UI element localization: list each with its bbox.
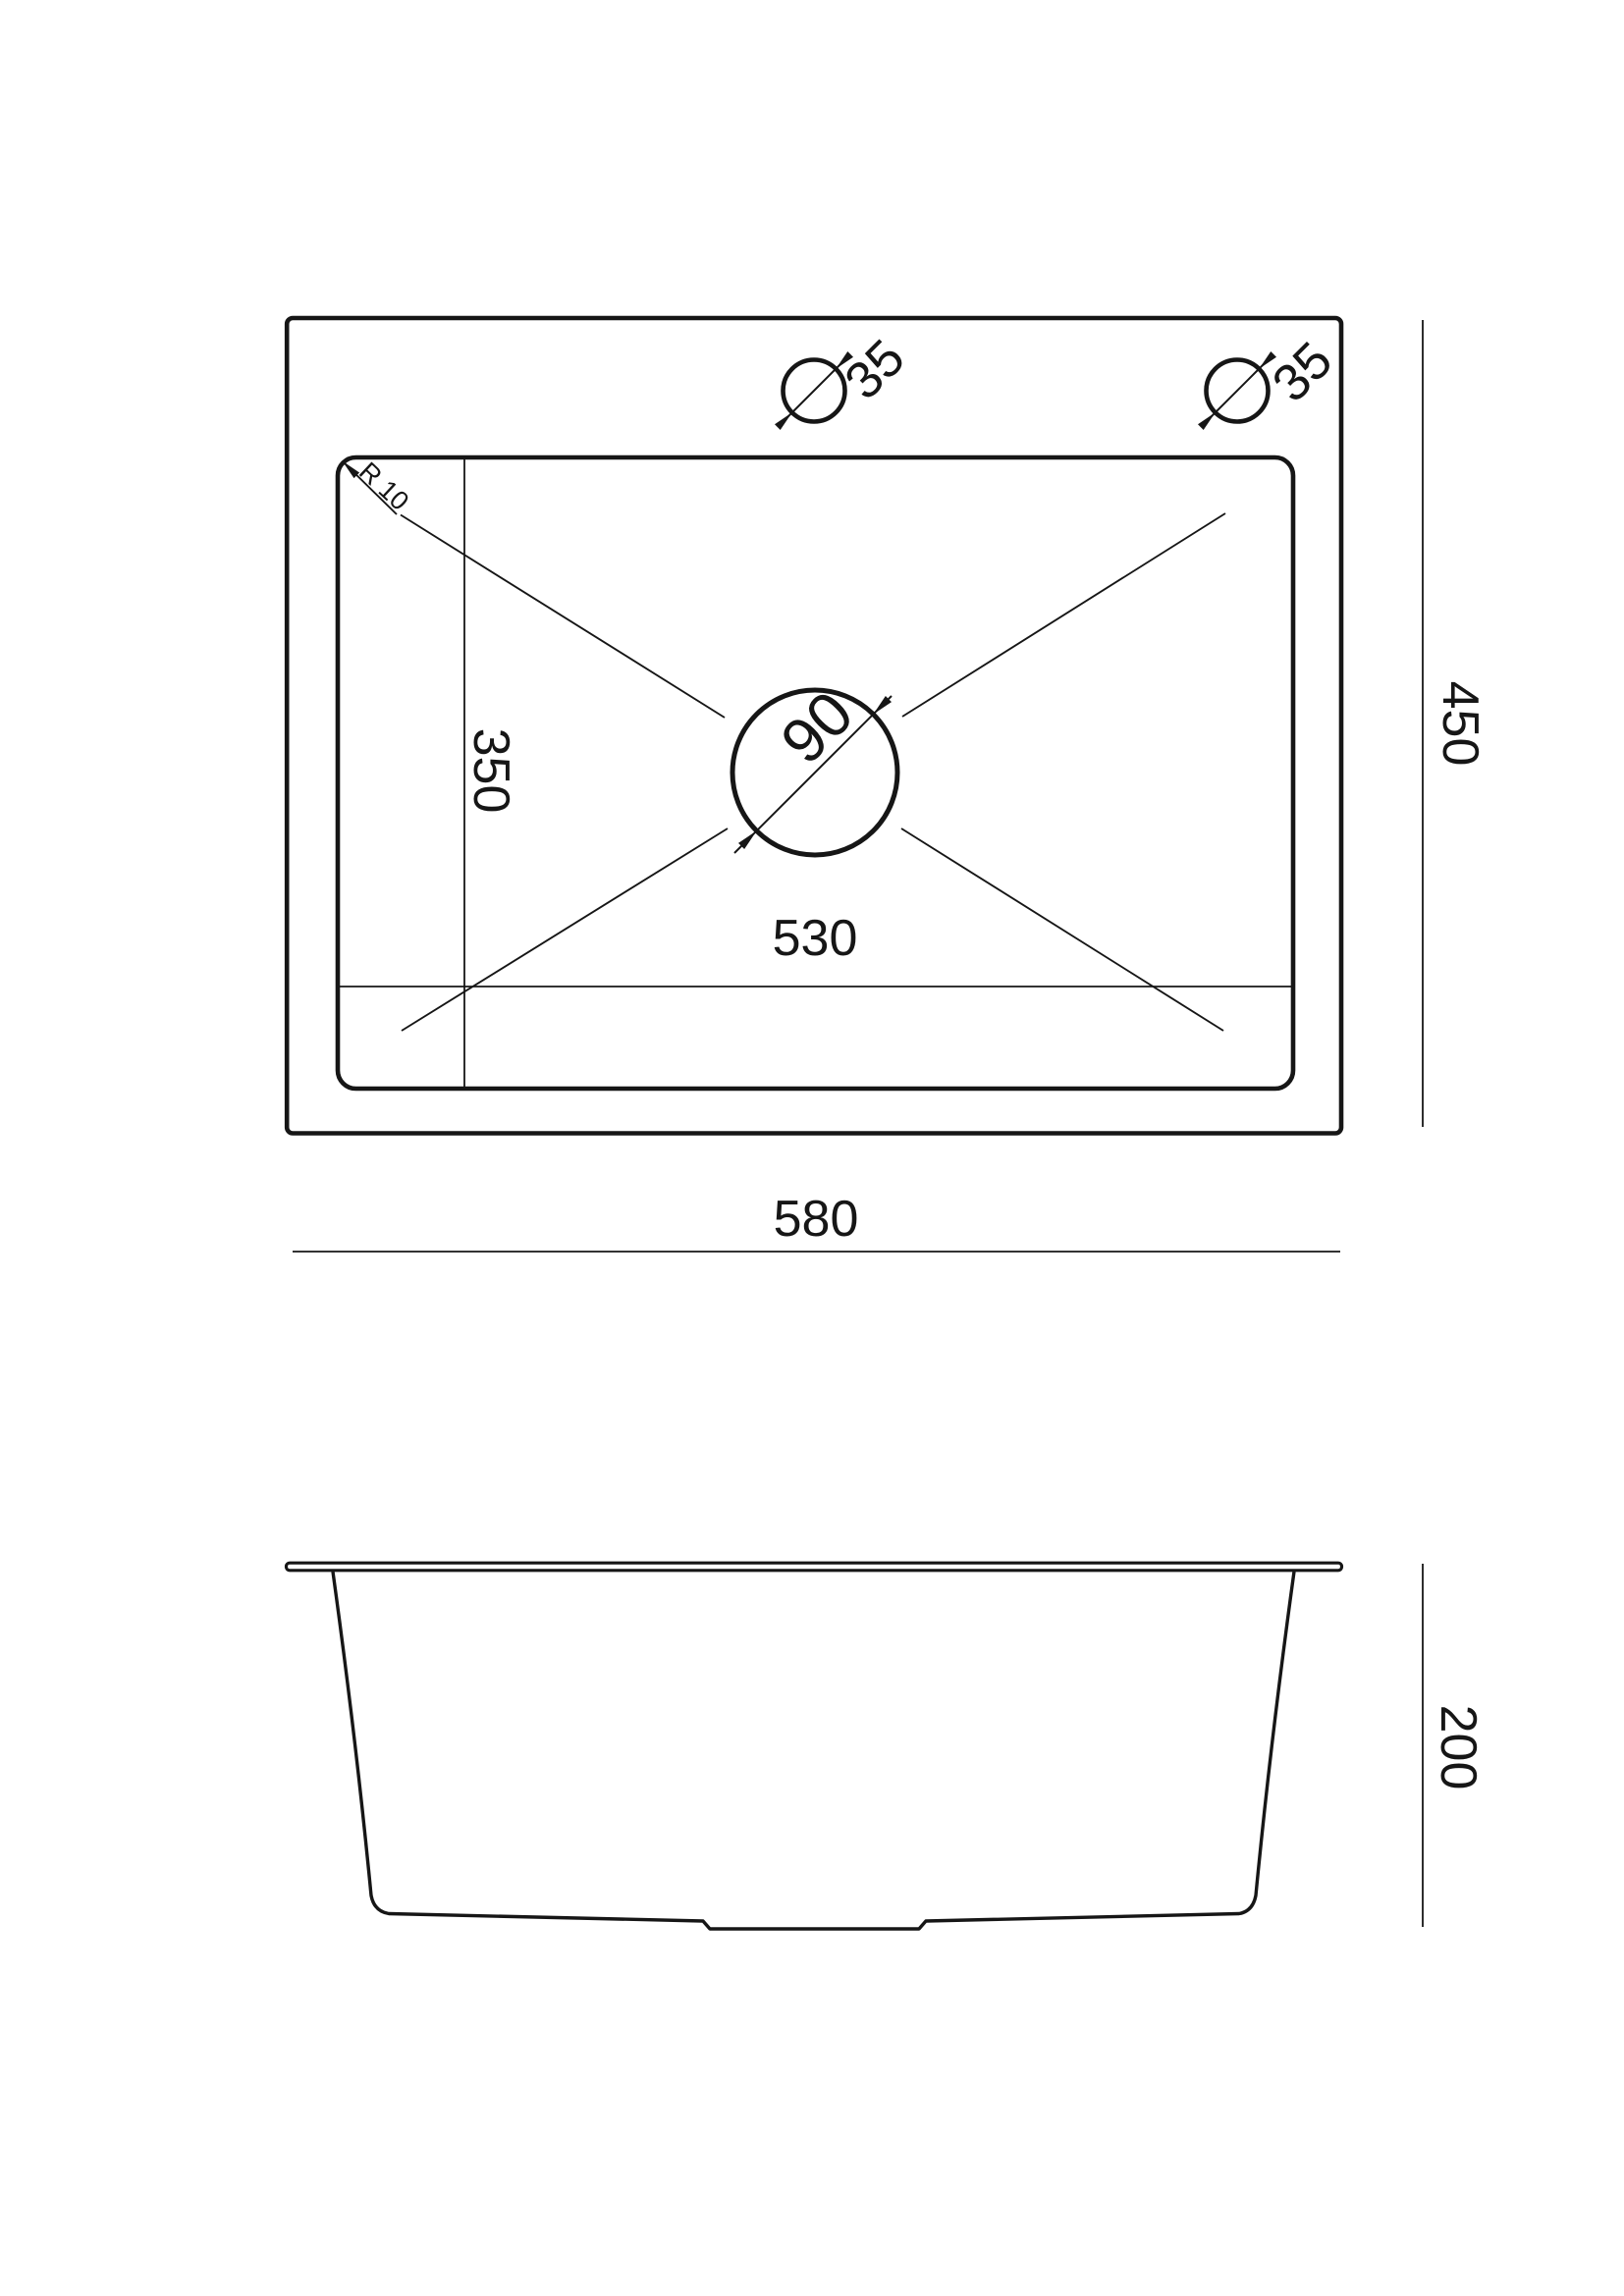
svg-text:450: 450 xyxy=(1432,681,1489,767)
svg-text:530: 530 xyxy=(773,910,858,967)
svg-text:200: 200 xyxy=(1430,1705,1487,1790)
svg-text:350: 350 xyxy=(462,728,519,814)
svg-text:580: 580 xyxy=(774,1191,859,1248)
